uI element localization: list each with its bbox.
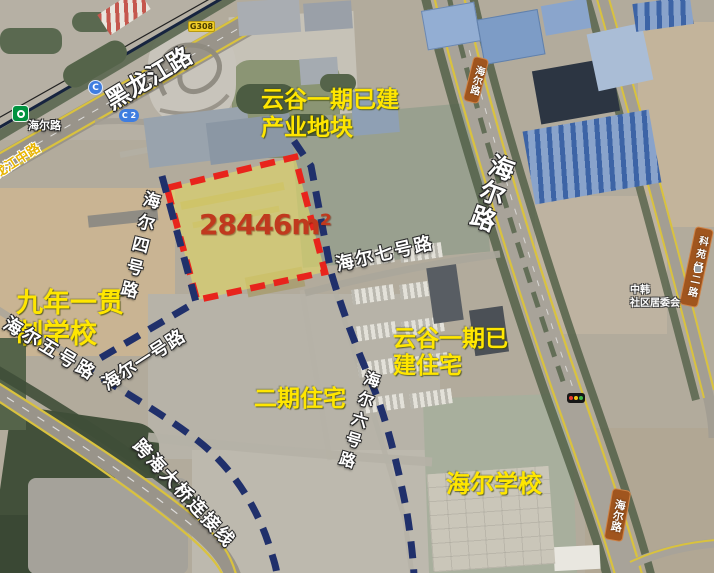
c2-marker-badge: C 2: [119, 109, 139, 122]
poi-community-label: 中韩 社区居委会: [630, 258, 704, 310]
traffic-light-icon: [567, 393, 585, 403]
label-school-line1: 九年一贯: [16, 288, 124, 319]
label-phase2-residential: 二期住宅: [254, 387, 346, 412]
label-parcel-area: 28446m²: [199, 210, 331, 241]
label-industrial-block: 云谷一期已建 产业地块: [261, 30, 293, 142]
label-industrial-line1: 云谷一期已建: [261, 86, 399, 114]
label-residential-line1: 云谷一期已: [393, 326, 508, 353]
poi-community-line2: 社区居委会: [630, 297, 680, 310]
label-industrial-line2: 产业地块: [261, 114, 353, 142]
poi-marker-icon: [694, 265, 702, 273]
c-marker-badge: C: [88, 80, 103, 95]
poi-community-line1: 中韩: [630, 284, 650, 297]
label-residential-line2: 建住宅: [393, 353, 462, 380]
label-haier-school: 海尔学校: [446, 471, 542, 497]
g308-highway-badge: G308: [188, 21, 215, 32]
label-residential-built: 云谷一期已 建住宅: [393, 272, 425, 380]
label-road-haier-topleft: 海尔路: [28, 120, 61, 132]
metro-station-icon: [12, 105, 29, 122]
satellite-map: 云谷一期已建 产业地块 九年一贯 制学校 云谷一期已 建住宅 二期住宅 海尔学校…: [0, 0, 714, 573]
